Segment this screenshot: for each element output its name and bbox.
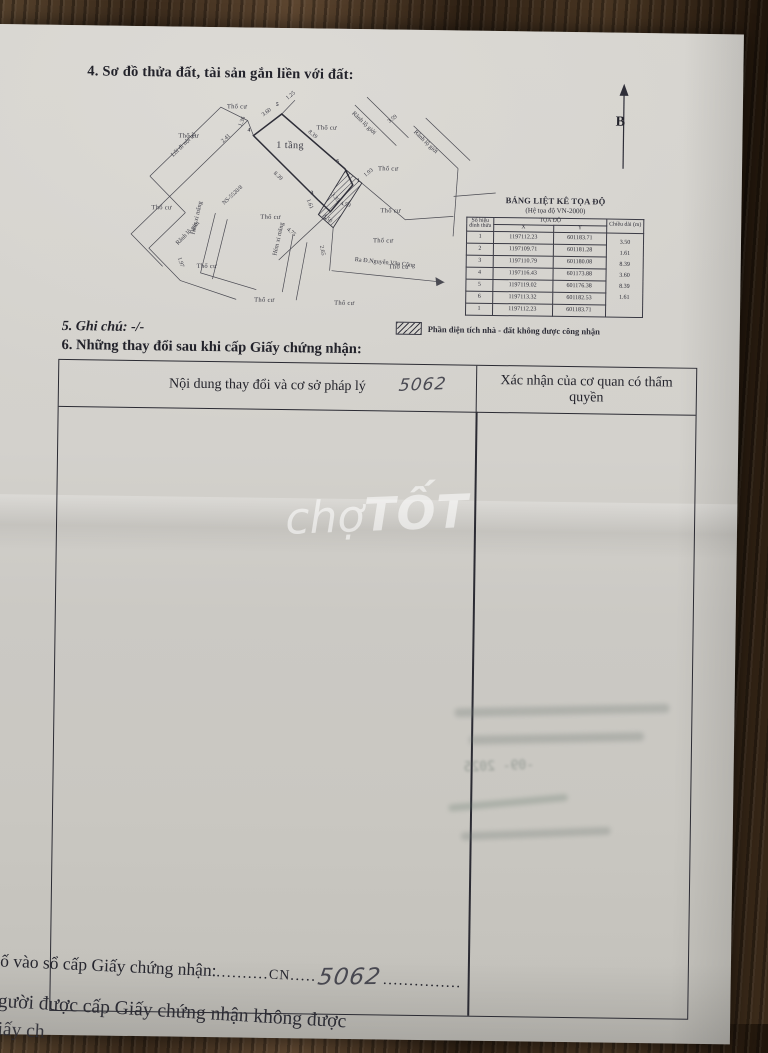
coord-cell: 1197109.71 bbox=[493, 243, 553, 256]
coord-cell: 1197112.23 bbox=[492, 303, 552, 316]
section5-note: 5. Ghi chú: -/- bbox=[62, 319, 145, 336]
diagram-label: Thổ cư bbox=[334, 300, 354, 307]
diagram-label: Thổ cư bbox=[151, 204, 171, 211]
coord-cell: 601183.71 bbox=[553, 232, 607, 245]
ink-bleedthrough: -09- 2025 bbox=[443, 690, 690, 853]
diagram-label: Thổ cư bbox=[260, 214, 280, 221]
section6-title: 6. Những thay đổi sau khi cấp Giấy chứng… bbox=[61, 337, 361, 358]
coord-table-subtitle: (Hệ tọa độ VN-2000) bbox=[463, 206, 647, 217]
bleed-streak bbox=[448, 794, 568, 812]
coord-cell: 1197113.32 bbox=[493, 291, 553, 304]
length-value: 1.61 bbox=[606, 295, 642, 302]
certificate-page: 4. Sơ đồ thửa đất, tài sản gắn liền với … bbox=[0, 24, 744, 1044]
length-value: 1.61 bbox=[607, 251, 643, 258]
length-value: 3.50 bbox=[607, 240, 643, 247]
north-arrowhead-icon bbox=[620, 84, 629, 96]
handwritten-serial-number: 5062 bbox=[316, 964, 383, 990]
hatch-swatch-icon bbox=[396, 322, 422, 335]
changes-col1-header: Nội dung thay đổi và cơ sở pháp lý bbox=[169, 376, 366, 395]
section4-title: 4. Sơ đồ thửa đất, tài sản gắn liền với … bbox=[87, 63, 354, 84]
coord-cell: 1197119.02 bbox=[493, 279, 553, 292]
changes-col2-header: Xác nhận của cơ quan có thẩm quyền bbox=[491, 373, 682, 408]
length-value: 3.60 bbox=[607, 273, 643, 280]
coord-rows: 11197112.23601183.713.501.618.393.608.39… bbox=[465, 231, 643, 317]
coord-table: Số hiệu đỉnh thửa TỌA ĐỘ Chiều dài (m) X… bbox=[465, 217, 644, 318]
diagram-label: Thổ cư bbox=[227, 103, 247, 110]
vertex-number: 6 bbox=[336, 159, 339, 165]
legend-text: Phần diện tích nhà - đất không được công… bbox=[428, 324, 600, 336]
changes-table-header: Nội dung thay đổi và cơ sở pháp lý 5062 … bbox=[59, 360, 697, 416]
serial-cn: CN bbox=[269, 968, 291, 984]
diagram-label: Thổ cư bbox=[380, 207, 400, 214]
bleed-streak bbox=[454, 704, 669, 718]
coord-cell: 601181.28 bbox=[553, 244, 607, 257]
coord-cell: 601173.88 bbox=[553, 268, 607, 281]
chotot-watermark: chợTỐT bbox=[284, 484, 470, 545]
coord-col-vertex: Số hiệu đỉnh thửa bbox=[467, 217, 494, 231]
changes-table: Nội dung thay đổi và cơ sở pháp lý 5062 … bbox=[49, 359, 697, 1020]
watermark-tot: TỐT bbox=[363, 484, 470, 542]
coord-cell: 1197116.43 bbox=[493, 267, 553, 280]
bleed-streak bbox=[461, 827, 611, 841]
diagram-label: Thổ cư bbox=[254, 297, 274, 304]
north-label: B bbox=[616, 115, 626, 130]
diagram-label: 1 tầng bbox=[276, 140, 304, 151]
vertex-number: 1 bbox=[357, 178, 360, 184]
vertex-number: 2 bbox=[323, 215, 326, 221]
length-value: 8.39 bbox=[607, 262, 643, 269]
coord-cell: 1197112.23 bbox=[493, 231, 553, 244]
dot-leader: ..... bbox=[290, 968, 317, 985]
bleed-date-stamp: -09- 2025 bbox=[463, 758, 534, 776]
length-value: 8.39 bbox=[606, 284, 642, 291]
length-column: 3.501.618.393.608.391.61 bbox=[605, 233, 643, 318]
north-arrow: B bbox=[598, 80, 649, 171]
photo-canvas: { "page": { "section4_title": "4. Sơ đồ … bbox=[0, 0, 768, 1024]
coord-cell: 601182.53 bbox=[552, 292, 606, 305]
clipped-bottom-line: Giấy ch bbox=[0, 1018, 45, 1044]
coord-cell: 1 bbox=[465, 303, 492, 315]
vertex-number: 4 bbox=[247, 128, 250, 134]
diagram-label: Thổ cư bbox=[378, 165, 398, 172]
coord-cell: 2 bbox=[466, 243, 493, 255]
coord-cell: 601183.71 bbox=[552, 304, 606, 317]
coord-cell: 601176.38 bbox=[552, 280, 606, 293]
street-arrow-icon bbox=[435, 277, 444, 286]
vertex-number: 5 bbox=[276, 102, 279, 108]
bleed-streak bbox=[469, 732, 644, 745]
coord-cell: 5 bbox=[466, 279, 493, 291]
dot-leader: .......... bbox=[216, 964, 269, 982]
dot-leader: ............... bbox=[383, 972, 462, 992]
coord-cell: 601180.08 bbox=[553, 256, 607, 269]
diagram-label: Thổ cư bbox=[373, 237, 393, 244]
diagram-label: Thổ cư bbox=[317, 124, 337, 131]
coord-cell: 3 bbox=[466, 255, 493, 267]
coord-cell: 4 bbox=[466, 267, 493, 279]
watermark-cho: chợ bbox=[284, 491, 365, 545]
coord-cell: 1197110.79 bbox=[493, 255, 553, 268]
diagram-label: Thổ cư bbox=[197, 263, 217, 270]
coordinate-table-block: BẢNG LIỆT KÊ TỌA ĐỘ (Hệ tọa độ VN-2000) … bbox=[462, 195, 648, 318]
coord-col-length: Chiều dài (m) bbox=[607, 219, 644, 233]
vertex-number: 3 bbox=[311, 190, 314, 196]
handwritten-serial-header: 5062 bbox=[398, 374, 448, 396]
coord-cell: 6 bbox=[466, 291, 493, 303]
coord-cell: 1 bbox=[466, 231, 493, 243]
